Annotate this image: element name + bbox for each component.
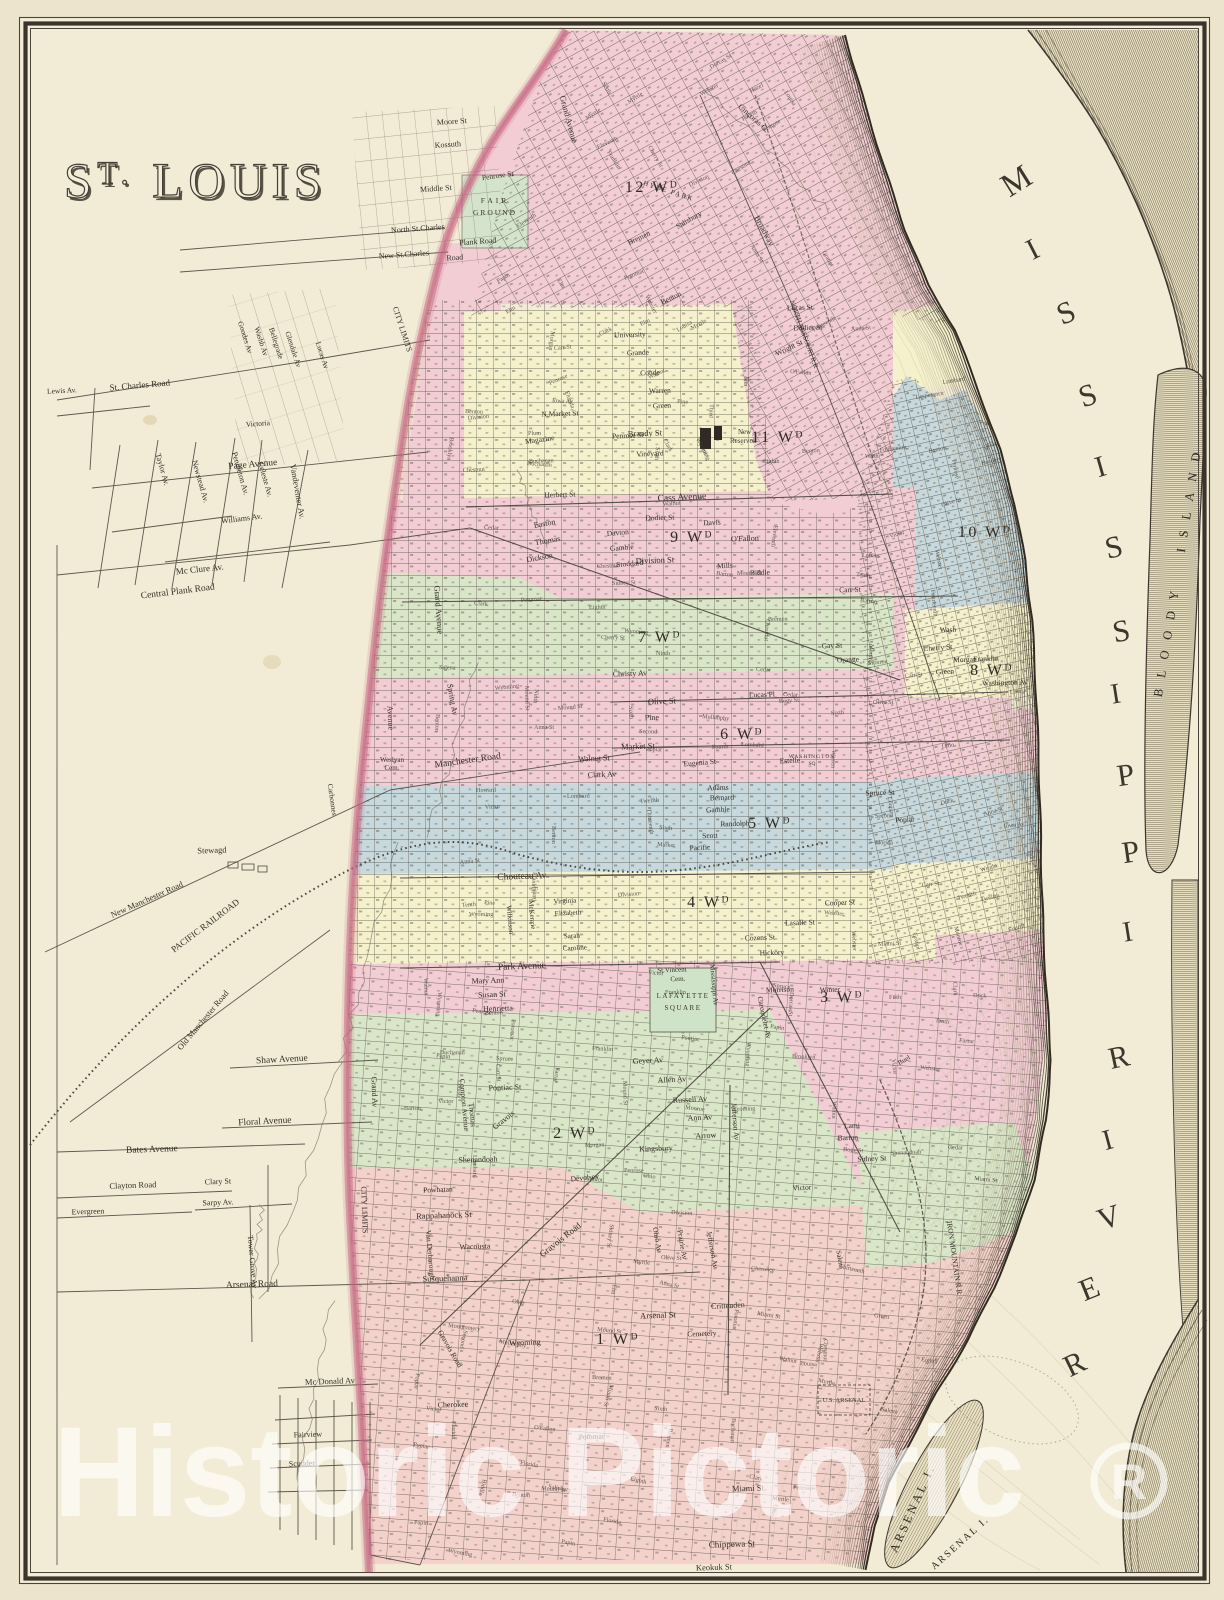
svg-text:Kingsbury: Kingsbury: [639, 1143, 673, 1153]
svg-text:Green: Green: [936, 667, 955, 677]
svg-text:Carr St: Carr St: [839, 585, 862, 595]
svg-text:Randolph: Randolph: [720, 818, 750, 828]
svg-text:Sixth: Sixth: [831, 709, 845, 717]
svg-text:2 Wᴰ: 2 Wᴰ: [553, 1125, 597, 1142]
svg-text:Park Avenue: Park Avenue: [498, 961, 546, 973]
svg-text:Barton: Barton: [860, 597, 877, 605]
svg-text:Green: Green: [653, 401, 672, 411]
svg-text:Victor: Victor: [792, 1182, 812, 1192]
svg-text:Lasalle St: Lasalle St: [785, 917, 816, 927]
svg-text:Pine: Pine: [677, 398, 689, 406]
svg-text:Pacific: Pacific: [689, 843, 711, 853]
svg-text:Orange: Orange: [837, 655, 860, 665]
svg-text:Barton: Barton: [837, 1132, 858, 1142]
svg-text:Sarah: Sarah: [564, 932, 581, 941]
svg-text:Victor: Victor: [485, 803, 501, 811]
svg-text:Benton: Benton: [465, 408, 483, 416]
svg-text:Dock: Dock: [973, 992, 988, 999]
svg-text:Winter: Winter: [819, 985, 840, 995]
svg-text:Morgan: Morgan: [585, 1141, 605, 1149]
svg-text:Arrow: Arrow: [695, 1130, 717, 1140]
svg-text:Mound St: Mound St: [621, 1081, 629, 1106]
svg-text:Herbert St: Herbert St: [544, 489, 576, 499]
svg-text:Morgan: Morgan: [953, 655, 977, 665]
svg-text:Louisa: Louisa: [800, 1360, 818, 1368]
svg-text:Benton: Benton: [802, 447, 820, 455]
svg-text:Franklin: Franklin: [592, 1045, 613, 1053]
svg-text:Benton: Benton: [433, 714, 441, 732]
svg-text:Clary St: Clary St: [205, 1177, 233, 1187]
svg-text:Webster: Webster: [850, 931, 858, 951]
svg-text:5 Wᴰ: 5 Wᴰ: [748, 815, 792, 832]
svg-text:Poplar: Poplar: [646, 746, 662, 753]
svg-text:Anna St: Anna St: [534, 724, 554, 731]
svg-text:Washington Av: Washington Av: [982, 677, 1028, 688]
svg-text:Carr St: Carr St: [494, 1064, 502, 1082]
svg-text:Mound St: Mound St: [737, 570, 762, 577]
svg-text:Cedar: Cedar: [783, 691, 798, 699]
svg-text:Avenue: Avenue: [385, 706, 395, 731]
svg-text:Tenth: Tenth: [462, 901, 477, 909]
svg-text:Olive St: Olive St: [873, 699, 894, 706]
svg-text:Virginia: Virginia: [553, 896, 577, 905]
svg-text:Wash: Wash: [865, 453, 880, 460]
svg-text:Bogy St: Bogy St: [843, 1146, 864, 1154]
svg-text:Mary Ann: Mary Ann: [471, 975, 504, 985]
svg-text:Bremen: Bremen: [592, 1374, 612, 1382]
svg-text:N.Market St: N.Market St: [541, 408, 579, 418]
svg-text:9 Wᴰ: 9 Wᴰ: [670, 529, 714, 546]
svg-text:Brooklyn: Brooklyn: [792, 1053, 816, 1061]
svg-text:Historic Pictoric: Historic Pictoric: [53, 1401, 1025, 1544]
svg-text:Susan St: Susan St: [478, 989, 507, 999]
svg-text:Victor: Victor: [648, 969, 664, 977]
svg-text:FAIR: FAIR: [481, 196, 510, 205]
svg-text:Ohio: Ohio: [512, 1298, 525, 1306]
svg-text:Barton: Barton: [404, 1105, 421, 1112]
svg-text:Eighth: Eighth: [589, 604, 607, 611]
svg-text:Rappahanock St: Rappahanock St: [416, 1209, 472, 1221]
svg-text:Buchanan: Buchanan: [440, 1049, 465, 1056]
svg-text:Wyoming: Wyoming: [744, 1042, 752, 1067]
svg-text:Evergreen: Evergreen: [71, 1206, 104, 1216]
svg-text:Weslyan: Weslyan: [380, 756, 404, 764]
svg-text:Cedar: Cedar: [484, 524, 499, 532]
svg-text:Walnut: Walnut: [422, 978, 430, 996]
svg-text:8 Wᴰ: 8 Wᴰ: [970, 662, 1014, 679]
svg-text:Bates Avenue: Bates Avenue: [126, 1144, 178, 1156]
svg-text:Gamble: Gamble: [706, 805, 731, 815]
svg-text:Olive St: Olive St: [648, 695, 677, 706]
svg-text:Mound St: Mound St: [523, 686, 531, 711]
svg-text:Road: Road: [446, 252, 463, 262]
svg-text:Russell Av: Russell Av: [673, 1094, 708, 1105]
svg-text:Hickory: Hickory: [759, 948, 784, 958]
svg-text:Lucas Pl: Lucas Pl: [749, 690, 775, 700]
svg-text:Wash: Wash: [940, 625, 957, 635]
svg-text:Sidney St: Sidney St: [612, 579, 636, 587]
svg-text:Fifth: Fifth: [889, 994, 902, 1001]
svg-text:Powhatan: Powhatan: [423, 1184, 453, 1194]
svg-text:Chestnut: Chestnut: [822, 1339, 829, 1361]
svg-text:Benton: Benton: [550, 826, 557, 844]
svg-text:Chestnut: Chestnut: [597, 562, 620, 570]
svg-text:Cedar: Cedar: [948, 1144, 963, 1152]
svg-text:Mc Donald Av: Mc Donald Av: [305, 1375, 356, 1387]
svg-text:11 Wᴰ: 11 Wᴰ: [751, 429, 805, 446]
svg-text:Twelfth: Twelfth: [640, 797, 660, 805]
svg-text:Chestnut: Chestnut: [463, 466, 486, 474]
svg-text:Plum: Plum: [528, 430, 541, 437]
svg-text:Franklin: Franklin: [973, 654, 999, 664]
svg-text:Sidney St: Sidney St: [857, 1153, 887, 1164]
svg-text:Olive St: Olive St: [661, 1254, 682, 1262]
svg-text:Cemetery: Cemetery: [687, 1328, 717, 1338]
svg-text:Mills: Mills: [717, 561, 733, 571]
svg-text:Market: Market: [657, 841, 676, 849]
svg-text:GROUND: GROUND: [473, 208, 517, 217]
svg-text:Ohio: Ohio: [941, 742, 954, 750]
svg-text:New: New: [738, 428, 752, 436]
svg-text:Wacousta: Wacousta: [459, 1241, 491, 1251]
svg-text:Scott: Scott: [702, 831, 719, 841]
svg-text:Stewagd: Stewagd: [197, 844, 227, 855]
svg-text:Elizabeth: Elizabeth: [554, 908, 581, 917]
svg-text:Florida: Florida: [875, 839, 893, 847]
svg-text:Pine: Pine: [645, 713, 660, 723]
svg-text:Lewis Av.: Lewis Av.: [47, 385, 77, 396]
svg-text:Benton: Benton: [485, 1009, 503, 1017]
svg-text:Division: Division: [671, 1209, 693, 1217]
svg-text:Walnut St: Walnut St: [578, 753, 611, 763]
svg-text:SQUARE: SQUARE: [664, 1004, 701, 1012]
svg-text:Victor: Victor: [438, 1098, 453, 1105]
svg-text:Warren: Warren: [649, 386, 671, 396]
svg-text:Cozens St: Cozens St: [745, 932, 776, 942]
svg-text:Warren: Warren: [829, 750, 837, 768]
svg-text:Poplar: Poplar: [895, 815, 915, 825]
svg-text:Sarpy Av.: Sarpy Av.: [202, 1197, 233, 1207]
svg-text:Sixth: Sixth: [653, 447, 661, 462]
svg-text:University: University: [614, 329, 646, 339]
svg-text:10 Wᴰ: 10 Wᴰ: [958, 524, 1012, 541]
svg-text:Spruce: Spruce: [496, 1055, 514, 1063]
svg-text:Estelle: Estelle: [780, 756, 801, 766]
svg-text:Adams: Adams: [707, 783, 729, 793]
svg-text:Franklin: Franklin: [665, 989, 686, 996]
svg-text:Salena: Salena: [439, 664, 456, 672]
svg-text:Clark: Clark: [474, 600, 489, 608]
svg-text:R: R: [1111, 1454, 1147, 1510]
svg-text:Grand Av: Grand Av: [369, 1076, 379, 1107]
svg-text:Farrar: Farrar: [959, 1037, 975, 1045]
svg-text:Howard: Howard: [476, 787, 497, 794]
svg-text:Cooper St: Cooper St: [825, 897, 856, 907]
svg-text:Davis: Davis: [703, 518, 721, 528]
svg-text:Dodier St: Dodier St: [645, 512, 675, 522]
svg-text:Lami: Lami: [844, 1121, 860, 1131]
svg-text:Chouteau Av: Chouteau Av: [497, 871, 547, 883]
svg-text:Fourth: Fourth: [712, 743, 730, 751]
svg-text:Caroline: Caroline: [563, 943, 587, 952]
svg-text:O'Fallon: O'Fallon: [731, 534, 759, 544]
svg-text:Louisa: Louisa: [455, 1080, 463, 1097]
svg-text:Clayton Road: Clayton Road: [109, 1179, 157, 1191]
svg-text:Ann Av: Ann Av: [687, 1112, 712, 1122]
svg-text:Tenth: Tenth: [856, 571, 871, 579]
svg-text:Cem.: Cem.: [670, 975, 685, 984]
svg-text:Pine: Pine: [484, 899, 496, 907]
svg-text:Kossuth: Kossuth: [434, 139, 461, 150]
svg-text:Lombard: Lombard: [471, 1155, 478, 1179]
svg-text:Keokuk St: Keokuk St: [696, 1561, 733, 1572]
svg-text:Christy Av: Christy Av: [613, 668, 648, 678]
svg-text:Sixth: Sixth: [627, 706, 635, 720]
svg-text:Victor: Victor: [890, 1059, 898, 1075]
svg-text:Wyoming: Wyoming: [731, 1105, 756, 1113]
svg-text:Second: Second: [639, 728, 658, 736]
svg-text:Clark: Clark: [951, 982, 959, 997]
svg-text:Allen Av: Allen Av: [657, 1074, 686, 1084]
svg-text:Arsenal St: Arsenal St: [640, 1309, 677, 1320]
svg-text:Louisa: Louisa: [862, 552, 879, 559]
svg-text:Cherry St: Cherry St: [601, 634, 625, 641]
svg-text:Cem.: Cem.: [385, 764, 400, 772]
svg-text:Clark Av: Clark Av: [588, 770, 617, 780]
svg-text:Sixth: Sixth: [659, 824, 674, 832]
svg-text:Lombard: Lombard: [567, 793, 591, 800]
svg-text:SQ: SQ: [808, 761, 815, 767]
svg-text:Bernard: Bernard: [710, 793, 735, 803]
svg-text:Ninth: Ninth: [656, 650, 671, 657]
svg-text:Brandy St: Brandy St: [628, 427, 663, 438]
svg-text:Cedar: Cedar: [756, 666, 771, 674]
svg-text:Pontiac St: Pontiac St: [488, 1082, 522, 1092]
svg-text:CITY LIMITS: CITY LIMITS: [359, 1186, 370, 1233]
svg-text:Third: Third: [707, 404, 715, 419]
svg-text:Gay St: Gay St: [821, 641, 843, 651]
svg-text:Penrose: Penrose: [624, 1167, 644, 1174]
svg-text:Wyoming: Wyoming: [469, 911, 493, 918]
svg-text:Eighth: Eighth: [763, 458, 780, 465]
svg-text:Grande: Grande: [627, 348, 650, 358]
svg-text:4 Wᴰ: 4 Wᴰ: [687, 894, 731, 911]
svg-text:12 Wᴰ: 12 Wᴰ: [625, 179, 679, 196]
svg-text:Elm: Elm: [742, 376, 750, 387]
svg-text:Walnut: Walnut: [830, 1101, 838, 1119]
svg-text:Miami St: Miami St: [878, 940, 902, 948]
svg-text:Victoria: Victoria: [245, 418, 270, 429]
svg-text:Geyer Av: Geyer Av: [633, 1055, 664, 1066]
svg-text:Dorcas St: Dorcas St: [787, 992, 795, 1017]
svg-text:Lombard: Lombard: [741, 741, 765, 749]
